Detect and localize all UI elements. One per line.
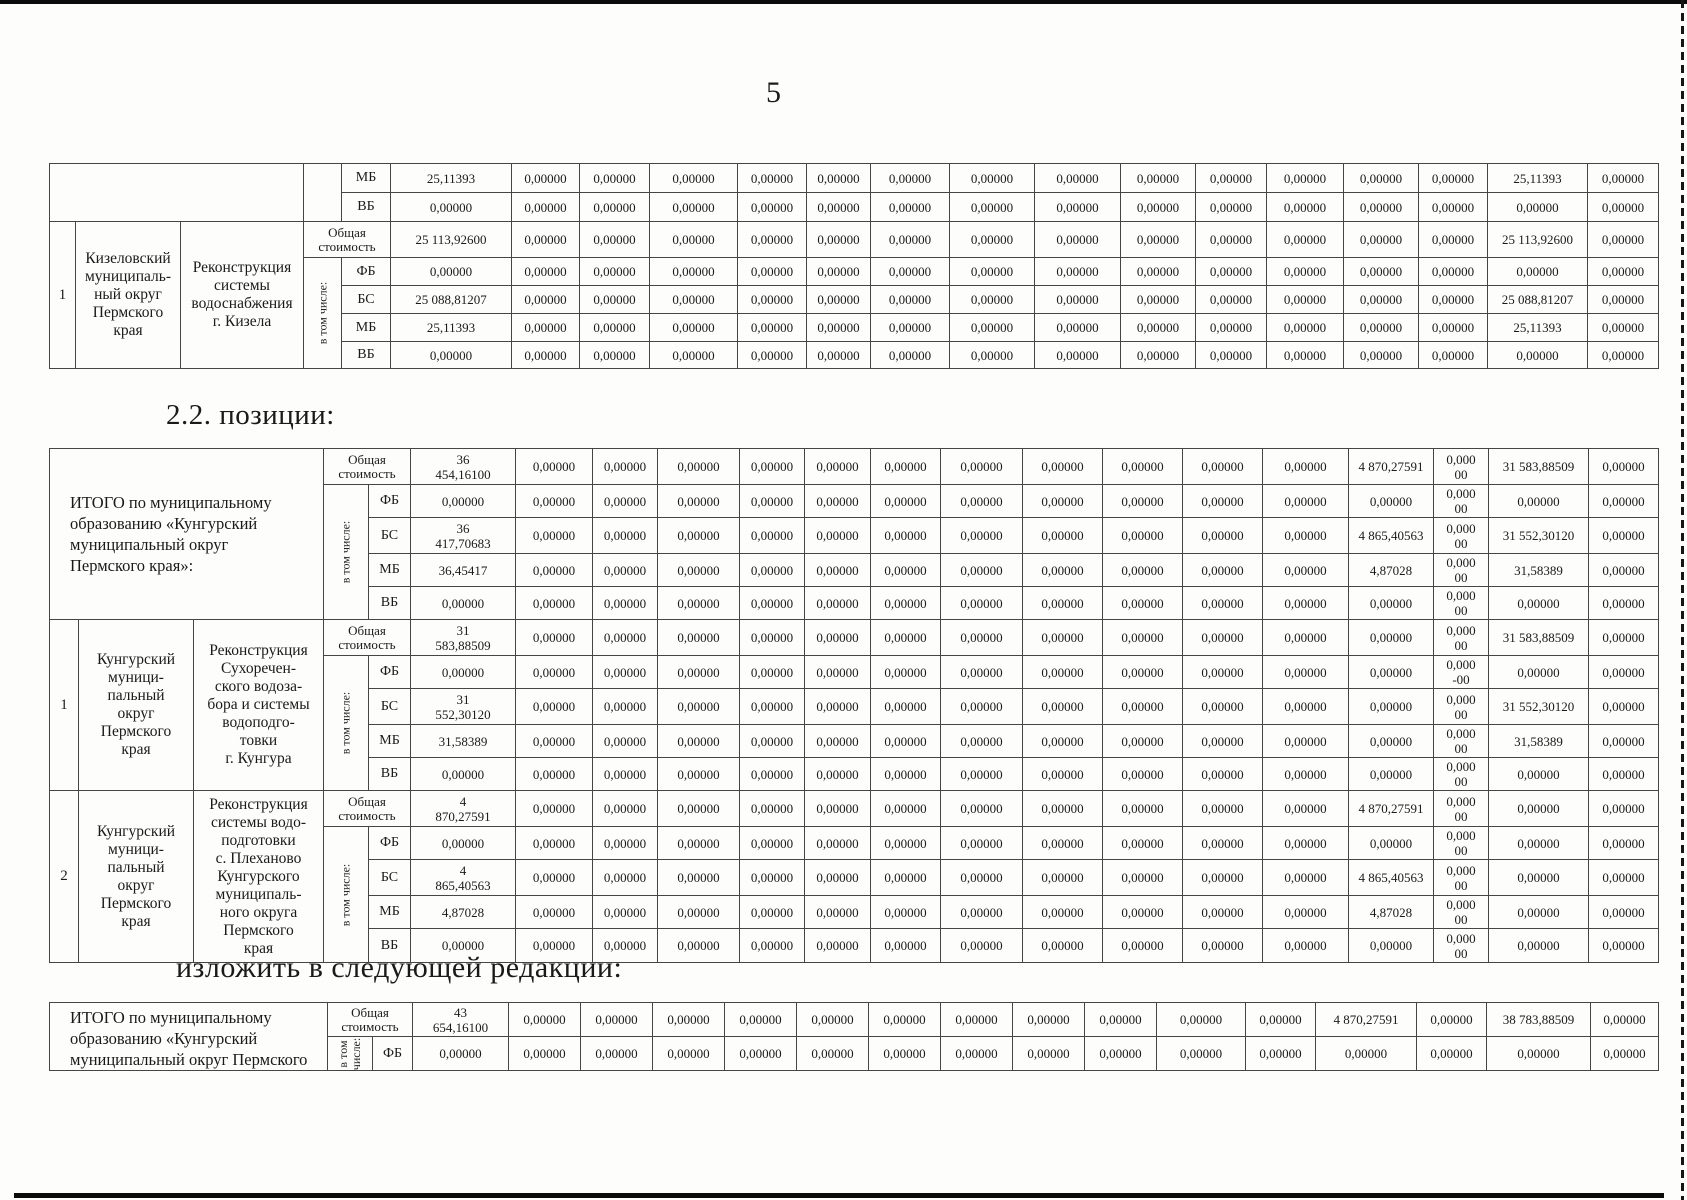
table-cell: 0,00000 bbox=[740, 518, 805, 554]
table-cell: 0,00000 bbox=[941, 587, 1023, 620]
table-cell: 0,00000 bbox=[1263, 554, 1349, 587]
section-heading-positions: 2.2. позиции: bbox=[166, 399, 335, 432]
table-cell: 0,00000 bbox=[658, 620, 740, 656]
scan-edge-bottom-bar bbox=[14, 1193, 1664, 1198]
table-cell: 0,00000 bbox=[593, 827, 658, 860]
table-cell: 0,00000 bbox=[411, 827, 516, 860]
table-cell: 0,00000 bbox=[593, 485, 658, 518]
table-cell: 0,00000 bbox=[1267, 164, 1344, 193]
funding-source-label-cell: ФБ bbox=[373, 1037, 413, 1071]
table-cell: 4,87028 bbox=[1349, 554, 1434, 587]
table-cell: 25 113,92600 bbox=[391, 222, 512, 258]
table-cell: 0,00000 bbox=[391, 258, 512, 286]
table-cell: 0,00000 bbox=[1589, 896, 1659, 929]
table-cell: 0,00000 bbox=[1588, 342, 1659, 369]
table-cell: 0,00000 bbox=[950, 193, 1035, 222]
table-cell: 0,00000 bbox=[1489, 758, 1589, 791]
including-rotated-cell: в том числе: bbox=[328, 1037, 373, 1071]
table-cell: 0,00000 bbox=[871, 342, 950, 369]
table-cell: 0,00000 bbox=[1183, 620, 1263, 656]
table-cell: 0,00000 bbox=[516, 860, 593, 896]
table-cell: 0,00000 bbox=[805, 827, 871, 860]
including-rotated-cell: в том числе: bbox=[324, 656, 369, 791]
table-cell: 0,00000 bbox=[805, 896, 871, 929]
table-cell: 0,00000 bbox=[805, 518, 871, 554]
table-cell: 0,00000 bbox=[740, 896, 805, 929]
table-cell: 0,00000 bbox=[740, 758, 805, 791]
table-cell: 0,00000 bbox=[1183, 758, 1263, 791]
total-cost-label-cell: Общая стоимость bbox=[324, 791, 411, 827]
table-cell: 0,00000 bbox=[1344, 286, 1419, 314]
table-cell: 0,00000 bbox=[658, 518, 740, 554]
table-cell: 0,00000 bbox=[738, 164, 807, 193]
table-cell: 0,00000 bbox=[580, 314, 650, 342]
funding-source-label-cell: БС bbox=[369, 689, 411, 725]
table-cell: 0,000 00 bbox=[1434, 449, 1489, 485]
table-cell: 0,00000 bbox=[941, 656, 1023, 689]
table-cell: 0,00000 bbox=[1588, 286, 1659, 314]
table-cell: 0,00000 bbox=[1103, 485, 1183, 518]
funding-source-label-cell: МБ bbox=[342, 314, 391, 342]
table-cell: 0,00000 bbox=[516, 725, 593, 758]
funding-source-label-cell: ФБ bbox=[369, 656, 411, 689]
table-cell: 36 417,70683 bbox=[411, 518, 516, 554]
table-cell: 0,00000 bbox=[1263, 827, 1349, 860]
table-cell: 0,00000 bbox=[1588, 193, 1659, 222]
table-cell: 0,00000 bbox=[1023, 689, 1103, 725]
table-cell: 0,00000 bbox=[950, 164, 1035, 193]
table-cell: 0,00000 bbox=[871, 164, 950, 193]
continued-entry-placeholder bbox=[50, 164, 304, 222]
table-cell: 0,00000 bbox=[1344, 342, 1419, 369]
table-cell: 0,00000 bbox=[1121, 342, 1196, 369]
table-cell: 0,00000 bbox=[1488, 342, 1588, 369]
table-cell: 0,00000 bbox=[869, 1037, 941, 1071]
table-cell: 0,00000 bbox=[1344, 222, 1419, 258]
table-cell: 0,00000 bbox=[593, 689, 658, 725]
table-cell: 0,00000 bbox=[1263, 725, 1349, 758]
table-cell: 0,00000 bbox=[1589, 725, 1659, 758]
table-cell: 0,00000 bbox=[509, 1037, 581, 1071]
table-cell: 0,00000 bbox=[1023, 587, 1103, 620]
table-cell: 0,00000 bbox=[1589, 620, 1659, 656]
table-cell: 0,00000 bbox=[1103, 827, 1183, 860]
table-cell: 38 783,88509 bbox=[1487, 1003, 1591, 1037]
table-cell: 0,00000 bbox=[871, 929, 941, 963]
table-cell: 0,00000 bbox=[871, 758, 941, 791]
table-cell: 0,00000 bbox=[941, 1037, 1013, 1071]
project-cell: Реконструкция системы водоснабжения г. К… bbox=[181, 222, 304, 369]
including-rotated-cell: в том числе: bbox=[324, 827, 369, 963]
table-cell: 0,00000 bbox=[941, 896, 1023, 929]
table-cell: 0,00000 bbox=[740, 587, 805, 620]
table-cell: 0,00000 bbox=[658, 587, 740, 620]
total-cost-label-cell: Общая стоимость bbox=[324, 449, 411, 485]
table-cell: 0,00000 bbox=[1589, 791, 1659, 827]
table-cell: 0,00000 bbox=[512, 342, 580, 369]
table-cell: 0,00000 bbox=[871, 222, 950, 258]
table-cell: 0,000 00 bbox=[1434, 860, 1489, 896]
table-cell: 0,000 00 bbox=[1434, 791, 1489, 827]
total-cost-label-cell: Общая стоимость bbox=[324, 620, 411, 656]
table-cell: 0,00000 bbox=[658, 656, 740, 689]
project-cell: Реконструкция системы водо- подготовки с… bbox=[194, 791, 324, 963]
table-cell: 0,00000 bbox=[593, 554, 658, 587]
data-table: ИТОГО по муниципальному образованию «Кун… bbox=[49, 448, 1659, 963]
table-cell: 25,11393 bbox=[1488, 314, 1588, 342]
section-heading-redaction: изложить в следующей редакции: bbox=[176, 951, 622, 985]
table-cell: 0,00000 bbox=[1489, 929, 1589, 963]
table-cell: 25,11393 bbox=[391, 164, 512, 193]
table-cell: 0,00000 bbox=[1489, 896, 1589, 929]
table-cell: 0,00000 bbox=[805, 689, 871, 725]
table-cell: 0,00000 bbox=[650, 286, 738, 314]
table-cell: 4 865,40563 bbox=[1349, 860, 1434, 896]
table-cell: 0,00000 bbox=[1589, 587, 1659, 620]
table-cell: 0,00000 bbox=[1419, 286, 1488, 314]
table-cell: 0,00000 bbox=[871, 725, 941, 758]
table-cell: 0,00000 bbox=[658, 485, 740, 518]
table-cell: 0,00000 bbox=[740, 620, 805, 656]
table-cell: 0,00000 bbox=[1023, 485, 1103, 518]
table-cell: 0,00000 bbox=[1267, 193, 1344, 222]
table-cell: 0,00000 bbox=[740, 791, 805, 827]
table-cell: 0,00000 bbox=[658, 860, 740, 896]
table-cell: 0,00000 bbox=[1419, 314, 1488, 342]
table-cell: 0,00000 bbox=[1263, 758, 1349, 791]
table-cell: 0,00000 bbox=[871, 314, 950, 342]
table-cell: 0,00000 bbox=[411, 587, 516, 620]
table-cell: 0,00000 bbox=[1263, 485, 1349, 518]
table-cell: 0,00000 bbox=[516, 758, 593, 791]
table-cell: 0,00000 bbox=[740, 689, 805, 725]
table-cell: 0,00000 bbox=[1588, 258, 1659, 286]
data-table: ИТОГО по муниципальному образованию «Кун… bbox=[49, 1002, 1659, 1071]
table-cell: 0,00000 bbox=[1103, 656, 1183, 689]
table-cell: 0,00000 bbox=[941, 725, 1023, 758]
table-cell: 0,00000 bbox=[950, 314, 1035, 342]
table-cell: 36 454,16100 bbox=[411, 449, 516, 485]
table-cell: 0,00000 bbox=[807, 314, 871, 342]
table-cell: 0,00000 bbox=[1196, 258, 1267, 286]
table-cell: 0,00000 bbox=[1035, 258, 1121, 286]
table-cell: 0,00000 bbox=[650, 258, 738, 286]
table-cell: 0,00000 bbox=[1035, 222, 1121, 258]
table-cell: 0,00000 bbox=[1267, 258, 1344, 286]
funding-source-label-cell: МБ bbox=[369, 554, 411, 587]
table-cell: 0,00000 bbox=[1489, 791, 1589, 827]
table-cell: 0,00000 bbox=[411, 656, 516, 689]
table-cell: 0,00000 bbox=[1103, 791, 1183, 827]
table-cell: 0,00000 bbox=[1419, 258, 1488, 286]
table-cell: 0,00000 bbox=[1196, 314, 1267, 342]
table-cell: 0,00000 bbox=[1267, 286, 1344, 314]
table-cell: 0,00000 bbox=[1183, 791, 1263, 827]
table-cell: 0,00000 bbox=[658, 554, 740, 587]
scan-edge-top-bar bbox=[0, 0, 1687, 4]
table-cell: 0,00000 bbox=[871, 896, 941, 929]
table-cell: 0,00000 bbox=[805, 929, 871, 963]
table-cell: 0,00000 bbox=[871, 518, 941, 554]
table-cell: 0,00000 bbox=[807, 164, 871, 193]
funding-source-label-cell: ВБ bbox=[369, 587, 411, 620]
table-cell: 0,00000 bbox=[1103, 620, 1183, 656]
table-cell: 0,00000 bbox=[871, 286, 950, 314]
document-page: 5 МБ25,113930,000000,000000,000000,00000… bbox=[0, 0, 1687, 1200]
table-cell: 0,000 -00 bbox=[1434, 656, 1489, 689]
table-cell: 0,00000 bbox=[805, 554, 871, 587]
table-cell: 0,00000 bbox=[871, 689, 941, 725]
table-cell: 0,00000 bbox=[1183, 554, 1263, 587]
table-cell: 0,00000 bbox=[1263, 791, 1349, 827]
table-cell: 4 870,27591 bbox=[411, 791, 516, 827]
table-cell: 0,00000 bbox=[1183, 518, 1263, 554]
table-cell: 0,00000 bbox=[805, 725, 871, 758]
table-cell: 0,000 00 bbox=[1434, 758, 1489, 791]
table-cell: 0,00000 bbox=[512, 314, 580, 342]
table-cell: 0,00000 bbox=[871, 258, 950, 286]
table-cell: 0,00000 bbox=[516, 896, 593, 929]
table-cell: 0,00000 bbox=[871, 449, 941, 485]
table-cell: 0,00000 bbox=[1588, 222, 1659, 258]
total-cost-label-cell: Общая стоимость bbox=[304, 222, 391, 258]
table-cell: 0,00000 bbox=[1588, 164, 1659, 193]
table-cell: 4 865,40563 bbox=[411, 860, 516, 896]
table-cell: 0,00000 bbox=[941, 485, 1023, 518]
table-cell: 0,00000 bbox=[1263, 620, 1349, 656]
table-cell: 31 552,30120 bbox=[1489, 518, 1589, 554]
table-cell: 0,00000 bbox=[1488, 258, 1588, 286]
table-cell: 0,00000 bbox=[1589, 827, 1659, 860]
table-cell: 0,00000 bbox=[805, 656, 871, 689]
table-cell: 0,00000 bbox=[1589, 689, 1659, 725]
table-cell: 0,00000 bbox=[1246, 1037, 1316, 1071]
table-cell: 0,00000 bbox=[1103, 860, 1183, 896]
table-cell: 31 583,88509 bbox=[1489, 449, 1589, 485]
funding-source-label-cell: МБ bbox=[342, 164, 391, 193]
table-cell: 0,00000 bbox=[413, 1037, 509, 1071]
table-cell: 0,00000 bbox=[653, 1003, 725, 1037]
table-cell: 0,00000 bbox=[1349, 485, 1434, 518]
table-cell: 0,00000 bbox=[941, 554, 1023, 587]
table-cell: 0,00000 bbox=[653, 1037, 725, 1071]
including-label: в том числе: bbox=[339, 863, 354, 926]
table-cell: 0,00000 bbox=[1103, 587, 1183, 620]
table-cell: 0,00000 bbox=[1349, 929, 1434, 963]
budget-table-kungursky-positions: ИТОГО по муниципальному образованию «Кун… bbox=[49, 448, 1659, 963]
table-cell: 0,00000 bbox=[797, 1003, 869, 1037]
table-cell: 0,00000 bbox=[1349, 689, 1434, 725]
funding-source-label-cell: БС bbox=[369, 860, 411, 896]
table-cell: 0,00000 bbox=[1489, 587, 1589, 620]
funding-source-label-cell: МБ bbox=[369, 896, 411, 929]
table-cell: 0,00000 bbox=[391, 342, 512, 369]
table-cell: 0,00000 bbox=[941, 860, 1023, 896]
table-cell: 0,00000 bbox=[1013, 1003, 1085, 1037]
table-cell: 0,00000 bbox=[1263, 656, 1349, 689]
table-cell: 0,00000 bbox=[1023, 791, 1103, 827]
table-cell: 0,00000 bbox=[1121, 222, 1196, 258]
table-cell: 0,000 00 bbox=[1434, 518, 1489, 554]
data-table: МБ25,113930,000000,000000,000000,000000,… bbox=[49, 163, 1659, 369]
including-label: в том числе: bbox=[315, 282, 330, 345]
table-cell: 0,000 00 bbox=[1434, 725, 1489, 758]
table-cell: 0,00000 bbox=[738, 193, 807, 222]
table-cell: 0,00000 bbox=[1263, 518, 1349, 554]
table-cell: 0,00000 bbox=[1349, 758, 1434, 791]
table-cell: 0,00000 bbox=[411, 758, 516, 791]
table-cell: 4 870,27591 bbox=[1316, 1003, 1417, 1037]
table-cell: 0,00000 bbox=[740, 929, 805, 963]
table-cell: 0,00000 bbox=[1103, 758, 1183, 791]
table-cell: 0,000 00 bbox=[1434, 587, 1489, 620]
table-cell: 0,00000 bbox=[512, 286, 580, 314]
table-cell: 31 552,30120 bbox=[1489, 689, 1589, 725]
table-cell: 0,00000 bbox=[516, 587, 593, 620]
table-cell: 0,00000 bbox=[1349, 656, 1434, 689]
table-cell: 0,00000 bbox=[1183, 827, 1263, 860]
table-cell: 0,00000 bbox=[1023, 656, 1103, 689]
table-cell: 0,00000 bbox=[950, 222, 1035, 258]
table-cell: 0,00000 bbox=[1589, 860, 1659, 896]
table-cell: 0,00000 bbox=[740, 860, 805, 896]
table-cell: 0,00000 bbox=[1103, 518, 1183, 554]
table-cell: 0,00000 bbox=[1183, 860, 1263, 896]
table-cell: 0,00000 bbox=[516, 791, 593, 827]
table-cell: 0,00000 bbox=[740, 827, 805, 860]
table-cell: 0,00000 bbox=[871, 193, 950, 222]
table-cell: 0,00000 bbox=[411, 485, 516, 518]
table-cell: 0,00000 bbox=[1267, 222, 1344, 258]
summary-title-cell: ИТОГО по муниципальному образованию «Кун… bbox=[50, 449, 324, 620]
funding-source-label-cell: ВБ bbox=[369, 758, 411, 791]
table-cell: 0,00000 bbox=[738, 258, 807, 286]
table-cell: 4,87028 bbox=[1349, 896, 1434, 929]
table-cell: 43 654,16100 bbox=[413, 1003, 509, 1037]
table-cell: 0,000 00 bbox=[1434, 827, 1489, 860]
table-cell: 0,00000 bbox=[871, 860, 941, 896]
table-cell: 0,00000 bbox=[1023, 620, 1103, 656]
table-cell: 0,00000 bbox=[941, 791, 1023, 827]
table-cell: 0,00000 bbox=[1121, 314, 1196, 342]
table-cell: 0,00000 bbox=[1183, 449, 1263, 485]
table-cell: 0,00000 bbox=[725, 1003, 797, 1037]
table-cell: 0,00000 bbox=[516, 827, 593, 860]
table-cell: 0,00000 bbox=[1157, 1003, 1246, 1037]
table-cell: 0,00000 bbox=[650, 314, 738, 342]
funding-source-label-cell: ВБ bbox=[342, 342, 391, 369]
table-cell: 0,00000 bbox=[807, 193, 871, 222]
table-cell: 0,00000 bbox=[658, 929, 740, 963]
entry-number-cell: 2 bbox=[50, 791, 79, 963]
table-cell: 0,00000 bbox=[516, 518, 593, 554]
table-cell: 0,00000 bbox=[512, 164, 580, 193]
table-cell: 0,00000 bbox=[650, 193, 738, 222]
table-cell: 0,00000 bbox=[740, 725, 805, 758]
table-cell: 0,00000 bbox=[950, 342, 1035, 369]
project-cell: Реконструкция Сухоречен- ского водоза- б… bbox=[194, 620, 324, 791]
table-cell: 25 088,81207 bbox=[391, 286, 512, 314]
table-cell: 0,00000 bbox=[1267, 342, 1344, 369]
table-cell: 0,00000 bbox=[391, 193, 512, 222]
table-cell: 0,00000 bbox=[1344, 314, 1419, 342]
table-cell: 0,00000 bbox=[658, 449, 740, 485]
table-cell: 0,00000 bbox=[1489, 485, 1589, 518]
table-cell: 0,00000 bbox=[1589, 485, 1659, 518]
table-cell: 31,58389 bbox=[411, 725, 516, 758]
table-cell: 0,00000 bbox=[805, 620, 871, 656]
table-cell: 0,00000 bbox=[580, 286, 650, 314]
table-cell: 0,00000 bbox=[740, 449, 805, 485]
table-cell: 0,00000 bbox=[593, 587, 658, 620]
table-cell: 0,00000 bbox=[941, 827, 1023, 860]
table-cell: 0,000 00 bbox=[1434, 896, 1489, 929]
table-cell: 0,00000 bbox=[1035, 193, 1121, 222]
table-cell: 0,00000 bbox=[1489, 827, 1589, 860]
table-cell: 0,00000 bbox=[593, 896, 658, 929]
table-cell: 0,00000 bbox=[1035, 286, 1121, 314]
table-cell: 0,00000 bbox=[1157, 1037, 1246, 1071]
table-cell: 0,00000 bbox=[805, 587, 871, 620]
table-cell: 0,00000 bbox=[1035, 164, 1121, 193]
table-cell: 0,00000 bbox=[805, 485, 871, 518]
table-cell: 0,00000 bbox=[1591, 1037, 1659, 1071]
table-cell: 0,00000 bbox=[1589, 518, 1659, 554]
including-rotated-cell: в том числе: bbox=[304, 258, 342, 369]
table-cell: 0,00000 bbox=[516, 554, 593, 587]
table-cell: 0,00000 bbox=[1023, 518, 1103, 554]
table-cell: 0,000 00 bbox=[1434, 689, 1489, 725]
table-cell: 0,00000 bbox=[658, 758, 740, 791]
table-cell: 0,00000 bbox=[1183, 587, 1263, 620]
table-cell: 31,58389 bbox=[1489, 725, 1589, 758]
table-cell: 0,00000 bbox=[1349, 587, 1434, 620]
table-cell: 0,00000 bbox=[871, 791, 941, 827]
table-cell: 0,00000 bbox=[658, 689, 740, 725]
table-cell: 31 552,30120 bbox=[411, 689, 516, 725]
table-cell: 0,00000 bbox=[1489, 656, 1589, 689]
table-cell: 0,00000 bbox=[740, 656, 805, 689]
table-cell: 0,00000 bbox=[1103, 554, 1183, 587]
table-cell: 0,00000 bbox=[950, 258, 1035, 286]
table-cell: 4,87028 bbox=[411, 896, 516, 929]
table-cell: 0,00000 bbox=[593, 656, 658, 689]
table-cell: 0,00000 bbox=[1588, 314, 1659, 342]
total-cost-label-cell: Общая стоимость bbox=[328, 1003, 413, 1037]
table-cell: 0,00000 bbox=[1316, 1037, 1417, 1071]
table-cell: 0,00000 bbox=[580, 164, 650, 193]
table-cell: 36,45417 bbox=[411, 554, 516, 587]
table-cell: 0,00000 bbox=[869, 1003, 941, 1037]
table-cell: 0,00000 bbox=[941, 518, 1023, 554]
table-cell: 0,00000 bbox=[1196, 286, 1267, 314]
table-cell: 0,00000 bbox=[650, 342, 738, 369]
table-cell: 0,00000 bbox=[1085, 1037, 1157, 1071]
table-cell: 0,00000 bbox=[658, 791, 740, 827]
table-cell: 0,00000 bbox=[1183, 725, 1263, 758]
scan-edge-right-dashes bbox=[1681, 0, 1684, 1200]
table-cell: 0,00000 bbox=[1196, 164, 1267, 193]
table-cell: 0,00000 bbox=[1489, 860, 1589, 896]
table-cell: 0,00000 bbox=[516, 689, 593, 725]
funding-source-label-cell: ФБ bbox=[369, 827, 411, 860]
table-cell: 31,58389 bbox=[1489, 554, 1589, 587]
table-cell: 0,00000 bbox=[1349, 620, 1434, 656]
table-cell: 0,00000 bbox=[1263, 929, 1349, 963]
table-cell: 25,11393 bbox=[391, 314, 512, 342]
table-cell: 0,00000 bbox=[1263, 860, 1349, 896]
municipality-cell: Кунгурский муници- пальный округ Пермско… bbox=[79, 791, 194, 963]
